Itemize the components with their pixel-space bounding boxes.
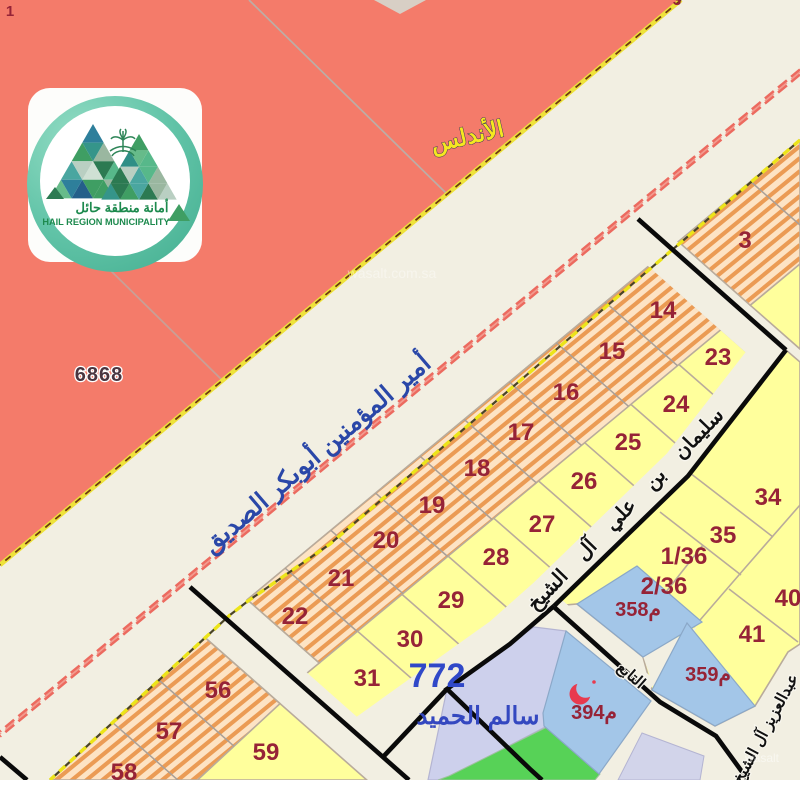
svg-text:6868: 6868 <box>75 364 124 386</box>
svg-text:1/36: 1/36 <box>661 543 708 570</box>
svg-text:wasalt.com.sa: wasalt.com.sa <box>347 265 437 281</box>
svg-text:22: 22 <box>282 603 309 630</box>
svg-text:18: 18 <box>464 455 491 482</box>
svg-text:58: 58 <box>111 759 138 780</box>
svg-text:358م: 358م <box>615 599 661 622</box>
svg-text:359م: 359م <box>685 664 731 687</box>
svg-text:26: 26 <box>571 468 598 495</box>
svg-text:35: 35 <box>710 522 737 549</box>
svg-text:2/36: 2/36 <box>641 573 688 600</box>
svg-text:20: 20 <box>373 527 400 554</box>
svg-text:14: 14 <box>650 297 677 324</box>
svg-text:29: 29 <box>438 587 465 614</box>
svg-text:772: 772 <box>409 657 466 695</box>
svg-text:wasalt: wasalt <box>744 751 780 765</box>
svg-text:HAIL REGION MUNICIPALITY: HAIL REGION MUNICIPALITY <box>42 217 169 227</box>
svg-text:25: 25 <box>615 429 642 456</box>
svg-text:16: 16 <box>553 379 580 406</box>
svg-text:34: 34 <box>755 484 782 511</box>
svg-text:17: 17 <box>508 419 535 446</box>
svg-text:23: 23 <box>705 344 732 371</box>
svg-text:40: 40 <box>775 585 800 612</box>
svg-text:30: 30 <box>397 626 424 653</box>
svg-text:24: 24 <box>663 391 690 418</box>
svg-text:28: 28 <box>483 544 510 571</box>
svg-text:394م: 394م <box>571 702 617 725</box>
svg-text:21: 21 <box>328 565 355 592</box>
svg-text:3: 3 <box>673 0 681 9</box>
svg-text:15: 15 <box>599 338 626 365</box>
svg-text:1: 1 <box>6 3 14 20</box>
svg-text:3: 3 <box>738 227 751 254</box>
svg-text:19: 19 <box>419 492 446 519</box>
svg-text:41: 41 <box>739 621 766 648</box>
svg-text:27: 27 <box>529 511 556 538</box>
svg-text:56: 56 <box>205 677 232 704</box>
svg-text:سالم الحميد: سالم الحميد <box>416 703 539 731</box>
svg-text:31: 31 <box>354 665 381 692</box>
svg-text:59: 59 <box>253 739 280 766</box>
svg-text:57: 57 <box>156 718 183 745</box>
svg-text:أمانة منطقة حائل: أمانة منطقة حائل <box>76 199 169 215</box>
